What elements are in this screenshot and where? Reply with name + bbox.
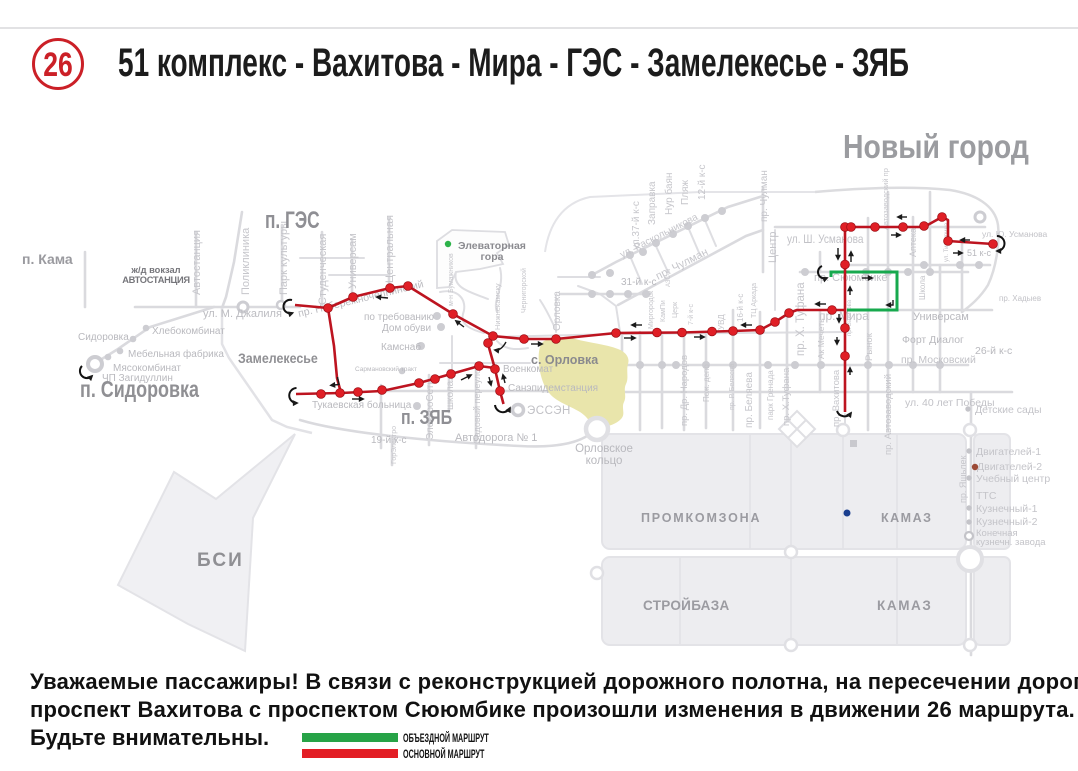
svg-text:Сидоровка: Сидоровка <box>78 332 129 343</box>
svg-text:Военкомат: Военкомат <box>503 364 554 375</box>
svg-text:Форт Диалог: Форт Диалог <box>902 334 964 346</box>
svg-text:Студенческая: Студенческая <box>317 234 329 305</box>
svg-text:АВТОСТАНЦИЯ: АВТОСТАНЦИЯ <box>122 275 190 285</box>
svg-text:БСИ: БСИ <box>197 550 244 571</box>
svg-text:Тукаевская больница: Тукаевская больница <box>312 399 412 411</box>
svg-text:Мебельная фабрика: Мебельная фабрика <box>128 348 224 360</box>
svg-text:пр. Яшьлек: пр. Яшьлек <box>958 455 968 503</box>
svg-text:Пож. депо: Пож. депо <box>702 364 711 402</box>
svg-text:Нижнекамску: Нижнекамску <box>493 283 502 330</box>
svg-text:Автозаводский пр: Автозаводский пр <box>881 168 890 230</box>
svg-text:пр. Х. Туфана: пр. Х. Туфана <box>795 282 807 356</box>
svg-text:51 к-с: 51 к-с <box>967 248 991 258</box>
svg-text:ул. Ю. Усманова: ул. Ю. Усманова <box>982 229 1048 239</box>
svg-text:26-й к-с: 26-й к-с <box>975 345 1012 357</box>
svg-text:кузнечн. завода: кузнечн. завода <box>976 537 1046 548</box>
svg-text:Церк: Церк <box>672 301 679 318</box>
svg-text:Нур баян: Нур баян <box>663 173 675 215</box>
svg-text:СТРОЙБАЗА: СТРОЙБАЗА <box>643 598 730 613</box>
svg-text:Автодорога № 1: Автодорога № 1 <box>455 432 537 444</box>
svg-text:Двигателей-1: Двигателей-1 <box>976 446 1041 458</box>
svg-text:7-й к-с: 7-й к-с <box>687 304 695 325</box>
svg-text:Автостанция: Автостанция <box>191 230 203 295</box>
svg-text:м-н Бумажников: м-н Бумажников <box>448 253 455 306</box>
svg-text:пр. Московский: пр. Московский <box>901 354 976 366</box>
svg-text:п. Сидоровка: п. Сидоровка <box>80 377 199 403</box>
svg-text:Дом обуви: Дом обуви <box>382 322 431 334</box>
svg-text:ж/д вокзал: ж/д вокзал <box>130 265 180 275</box>
svg-text:ул. М. Джалиля: ул. М. Джалиля <box>203 308 282 320</box>
svg-text:Пляж: Пляж <box>680 180 691 205</box>
svg-text:пр. Хадыев: пр. Хадыев <box>999 294 1041 303</box>
svg-text:кольцо: кольцо <box>586 455 623 467</box>
svg-text:Замелекесье: Замелекесье <box>238 351 318 367</box>
svg-text:ТТС: ТТС <box>976 490 997 502</box>
svg-text:12-й к-с: 12-й к-с <box>697 164 708 200</box>
svg-text:Камснаб: Камснаб <box>381 341 421 353</box>
svg-text:ул. Ш. Усманова: ул. Ш. Усманова <box>787 233 864 246</box>
svg-text:пр. Чулман: пр. Чулман <box>759 170 770 222</box>
svg-text:51 комплекс - Вахитова - Мира: 51 комплекс - Вахитова - Мира - ГЭС - За… <box>118 41 909 85</box>
svg-text:п. Кама: п. Кама <box>22 251 73 267</box>
svg-text:Чернигорской: Чернигорской <box>520 268 528 313</box>
svg-text:Кузнечный-2: Кузнечный-2 <box>976 516 1038 528</box>
svg-text:пр. Х.Туфана: пр. Х.Туфана <box>781 367 792 426</box>
svg-text:Орловское: Орловское <box>575 443 633 455</box>
svg-text:пр. Др. Народов: пр. Др. Народов <box>679 355 690 426</box>
svg-text:Двигателей-2: Двигателей-2 <box>977 461 1042 473</box>
svg-text:проспект Вахитова с проспектом: проспект Вахитова с проспектом Сююмбике … <box>30 697 1075 722</box>
svg-text:по требованию: по требованию <box>364 311 435 323</box>
svg-text:Учебный центр: Учебный центр <box>976 473 1050 485</box>
svg-text:пр. Р. Беляева: пр. Р. Беляева <box>729 364 736 410</box>
svg-text:Новый город: Новый город <box>843 128 1029 166</box>
svg-text:п. ГЭС: п. ГЭС <box>265 207 320 233</box>
svg-text:Кузнечный-1: Кузнечный-1 <box>976 503 1038 515</box>
svg-text:КамПи: КамПи <box>660 300 667 322</box>
svg-text:Рынок: Рынок <box>864 332 875 361</box>
svg-text:ПРОМКОМЗОНА: ПРОМКОМЗОНА <box>641 511 761 525</box>
svg-text:Заправка: Заправка <box>647 181 658 225</box>
svg-text:гора: гора <box>481 251 504 263</box>
svg-text:Будьте внимательны.: Будьте внимательны. <box>30 725 269 750</box>
svg-text:26: 26 <box>43 46 73 84</box>
svg-text:Центр: Центр <box>767 232 779 264</box>
svg-text:ТЦ Аркада: ТЦ Аркада <box>751 283 758 318</box>
svg-text:Орловка: Орловка <box>552 291 563 331</box>
svg-text:пр. Автозаводский: пр. Автозаводский <box>883 374 894 455</box>
svg-text:Санэпидемстанция: Санэпидемстанция <box>508 383 598 394</box>
svg-text:Уважаемые пассажиры! В связи с: Уважаемые пассажиры! В связи с реконстру… <box>30 669 1078 694</box>
svg-text:31-й к-с: 31-й к-с <box>621 277 657 288</box>
svg-text:Поликлиника: Поликлиника <box>240 227 252 295</box>
svg-text:Школа: Школа <box>918 275 927 300</box>
svg-text:19-й к-с: 19-й к-с <box>371 435 407 446</box>
svg-text:Универсам: Универсам <box>913 311 969 323</box>
svg-text:пр. Вахитова: пр. Вахитова <box>831 369 842 427</box>
svg-text:Центральная: Центральная <box>384 215 396 283</box>
svg-text:16-й к-с: 16-й к-с <box>736 294 745 322</box>
svg-text:УВД: УВД <box>717 314 726 330</box>
svg-text:ОСНОВНОЙ МАРШРУТ: ОСНОВНОЙ МАРШРУТ <box>403 747 484 762</box>
svg-text:парк Гренада: парк Гренада <box>766 370 775 420</box>
svg-text:Миргородск: Миргородск <box>648 290 655 329</box>
svg-text:пр. Беляева: пр. Беляева <box>744 372 755 428</box>
svg-text:Аптека: Аптека <box>908 228 918 257</box>
svg-text:Сармановский тракт: Сармановский тракт <box>355 365 417 373</box>
svg-text:Хлебокомбинат: Хлебокомбинат <box>152 325 225 337</box>
svg-text:ЭССЭН: ЭССЭН <box>527 405 571 417</box>
svg-text:КАМАЗ: КАМАЗ <box>881 511 932 525</box>
svg-text:КАМАЗ: КАМАЗ <box>877 598 932 613</box>
svg-text:ОБЪЕЗДНОЙ МАРШРУТ: ОБЪЕЗДНОЙ МАРШРУТ <box>403 731 489 746</box>
svg-text:Универсам: Универсам <box>347 233 359 289</box>
svg-text:Ак Мечеть: Ак Мечеть <box>816 318 826 359</box>
svg-text:Детские сады: Детские сады <box>975 404 1042 416</box>
